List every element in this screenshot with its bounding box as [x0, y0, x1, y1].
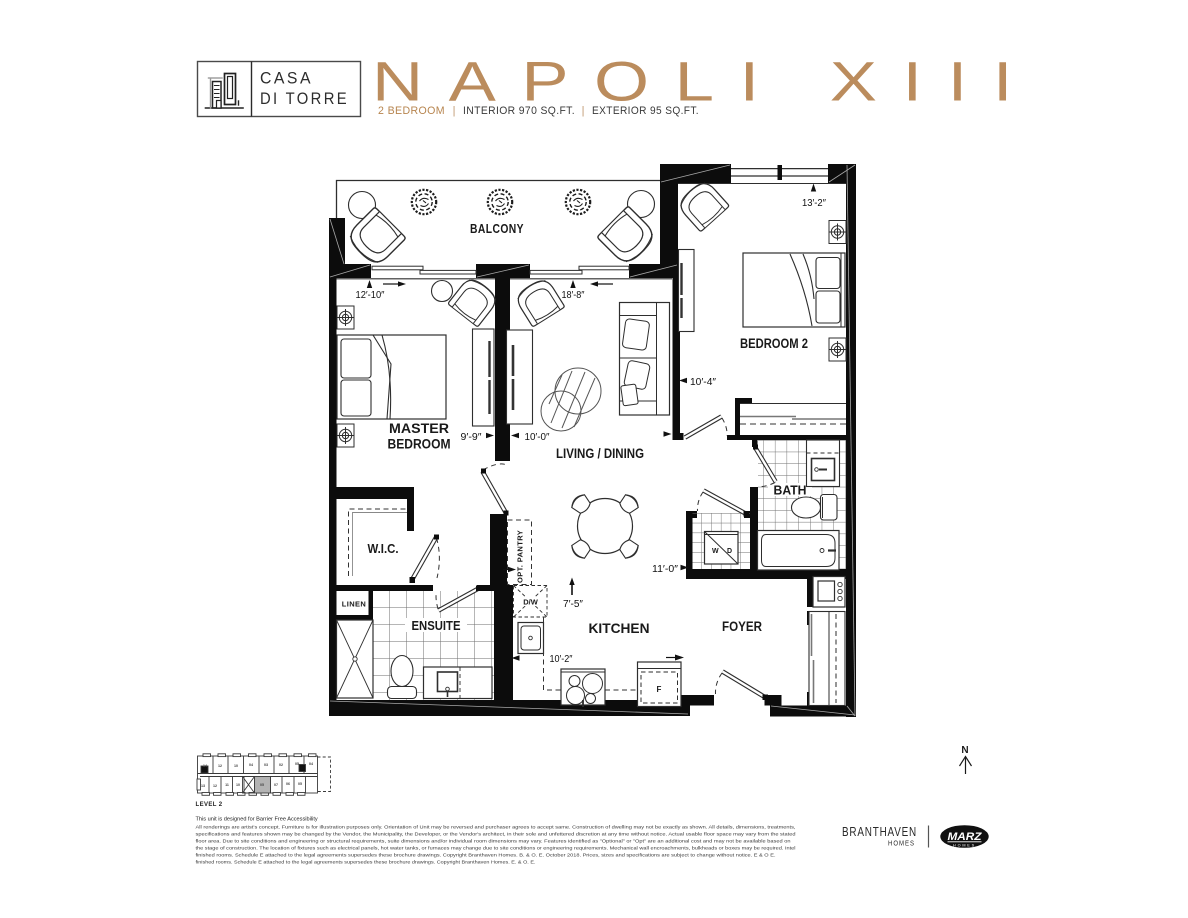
svg-text:specifications and features sh: specifications and features shown may be…	[196, 831, 796, 836]
svg-text:BALCONY: BALCONY	[470, 222, 524, 236]
svg-text:CASA: CASA	[260, 70, 313, 88]
svg-text:D: D	[727, 548, 732, 555]
svg-text:KITCHEN: KITCHEN	[589, 621, 650, 636]
svg-text:05: 05	[298, 782, 302, 786]
svg-text:HOMES: HOMES	[953, 844, 976, 848]
svg-text:MASTER: MASTER	[389, 421, 449, 436]
svg-text:10′-4″: 10′-4″	[690, 377, 716, 388]
svg-text:This unit is designed for Barr: This unit is designed for Barrier Free A…	[196, 817, 318, 823]
svg-text:finished rooms. Schedule E att: finished rooms. Schedule E attached to t…	[196, 852, 776, 857]
svg-text:NAPOLI XIII: NAPOLI XIII	[372, 51, 1038, 113]
svg-text:|: |	[582, 105, 585, 117]
svg-text:W.I.C.: W.I.C.	[368, 541, 399, 556]
svg-text:finished rooms. Schedule E att: finished rooms. Schedule E attached to t…	[196, 859, 536, 864]
svg-text:12: 12	[213, 784, 217, 788]
svg-text:03: 03	[264, 763, 268, 767]
svg-text:OPT. PANTRY: OPT. PANTRY	[516, 530, 525, 583]
svg-text:ENSUITE: ENSUITE	[412, 618, 461, 633]
svg-text:N: N	[961, 745, 968, 756]
svg-text:D/W: D/W	[523, 598, 539, 607]
svg-text:|: |	[453, 105, 456, 117]
svg-text:All renderings are artist's co: All renderings are artist's concept. Fur…	[196, 824, 796, 829]
svg-text:LINEN: LINEN	[342, 600, 367, 609]
svg-text:02: 02	[279, 763, 283, 767]
svg-text:12: 12	[218, 764, 222, 768]
svg-text:10: 10	[234, 764, 238, 768]
svg-text:05: 05	[260, 783, 264, 787]
svg-text:11′-0″: 11′-0″	[652, 564, 678, 575]
svg-text:14: 14	[203, 764, 207, 768]
svg-text:12′-10″: 12′-10″	[356, 290, 385, 301]
svg-text:the stage of construction. The: the stage of construction. The location …	[196, 845, 796, 850]
svg-text:LEVEL 2: LEVEL 2	[196, 802, 223, 808]
svg-text:BATH: BATH	[774, 483, 807, 498]
svg-text:F: F	[657, 685, 662, 694]
svg-text:FOYER: FOYER	[722, 619, 762, 634]
svg-text:floor area. Due to site condit: floor area. Due to site conditions and e…	[196, 838, 791, 843]
svg-text:INTERIOR 970 SQ.FT.: INTERIOR 970 SQ.FT.	[463, 105, 575, 117]
svg-text:BEDROOM: BEDROOM	[388, 437, 451, 452]
svg-text:BRANTHAVEN: BRANTHAVEN	[842, 825, 917, 839]
svg-text:07: 07	[274, 783, 278, 787]
svg-text:7′-5″: 7′-5″	[563, 599, 583, 610]
svg-text:13′-2″: 13′-2″	[802, 198, 826, 209]
svg-text:EXTERIOR 95 SQ.FT.: EXTERIOR 95 SQ.FT.	[592, 105, 699, 117]
svg-text:10: 10	[236, 783, 240, 787]
svg-text:MARZ: MARZ	[948, 831, 983, 843]
svg-text:05: 05	[295, 762, 299, 766]
svg-text:10′-2″: 10′-2″	[550, 654, 573, 665]
svg-text:10′-0″: 10′-0″	[525, 432, 550, 443]
svg-text:11: 11	[225, 783, 229, 787]
svg-text:18′-8″: 18′-8″	[562, 290, 585, 301]
svg-text:BEDROOM 2: BEDROOM 2	[740, 336, 808, 351]
svg-text:06: 06	[286, 782, 290, 786]
svg-text:HOMES: HOMES	[888, 839, 915, 848]
svg-text:DI TORRE: DI TORRE	[260, 90, 349, 108]
svg-text:9′-9″: 9′-9″	[461, 432, 482, 443]
svg-text:13: 13	[201, 784, 205, 788]
svg-text:LIVING / DINING: LIVING / DINING	[556, 446, 644, 461]
svg-text:2 BEDROOM: 2 BEDROOM	[378, 105, 445, 117]
svg-text:04: 04	[309, 762, 313, 766]
svg-text:04: 04	[249, 763, 253, 767]
svg-text:W: W	[712, 548, 719, 555]
